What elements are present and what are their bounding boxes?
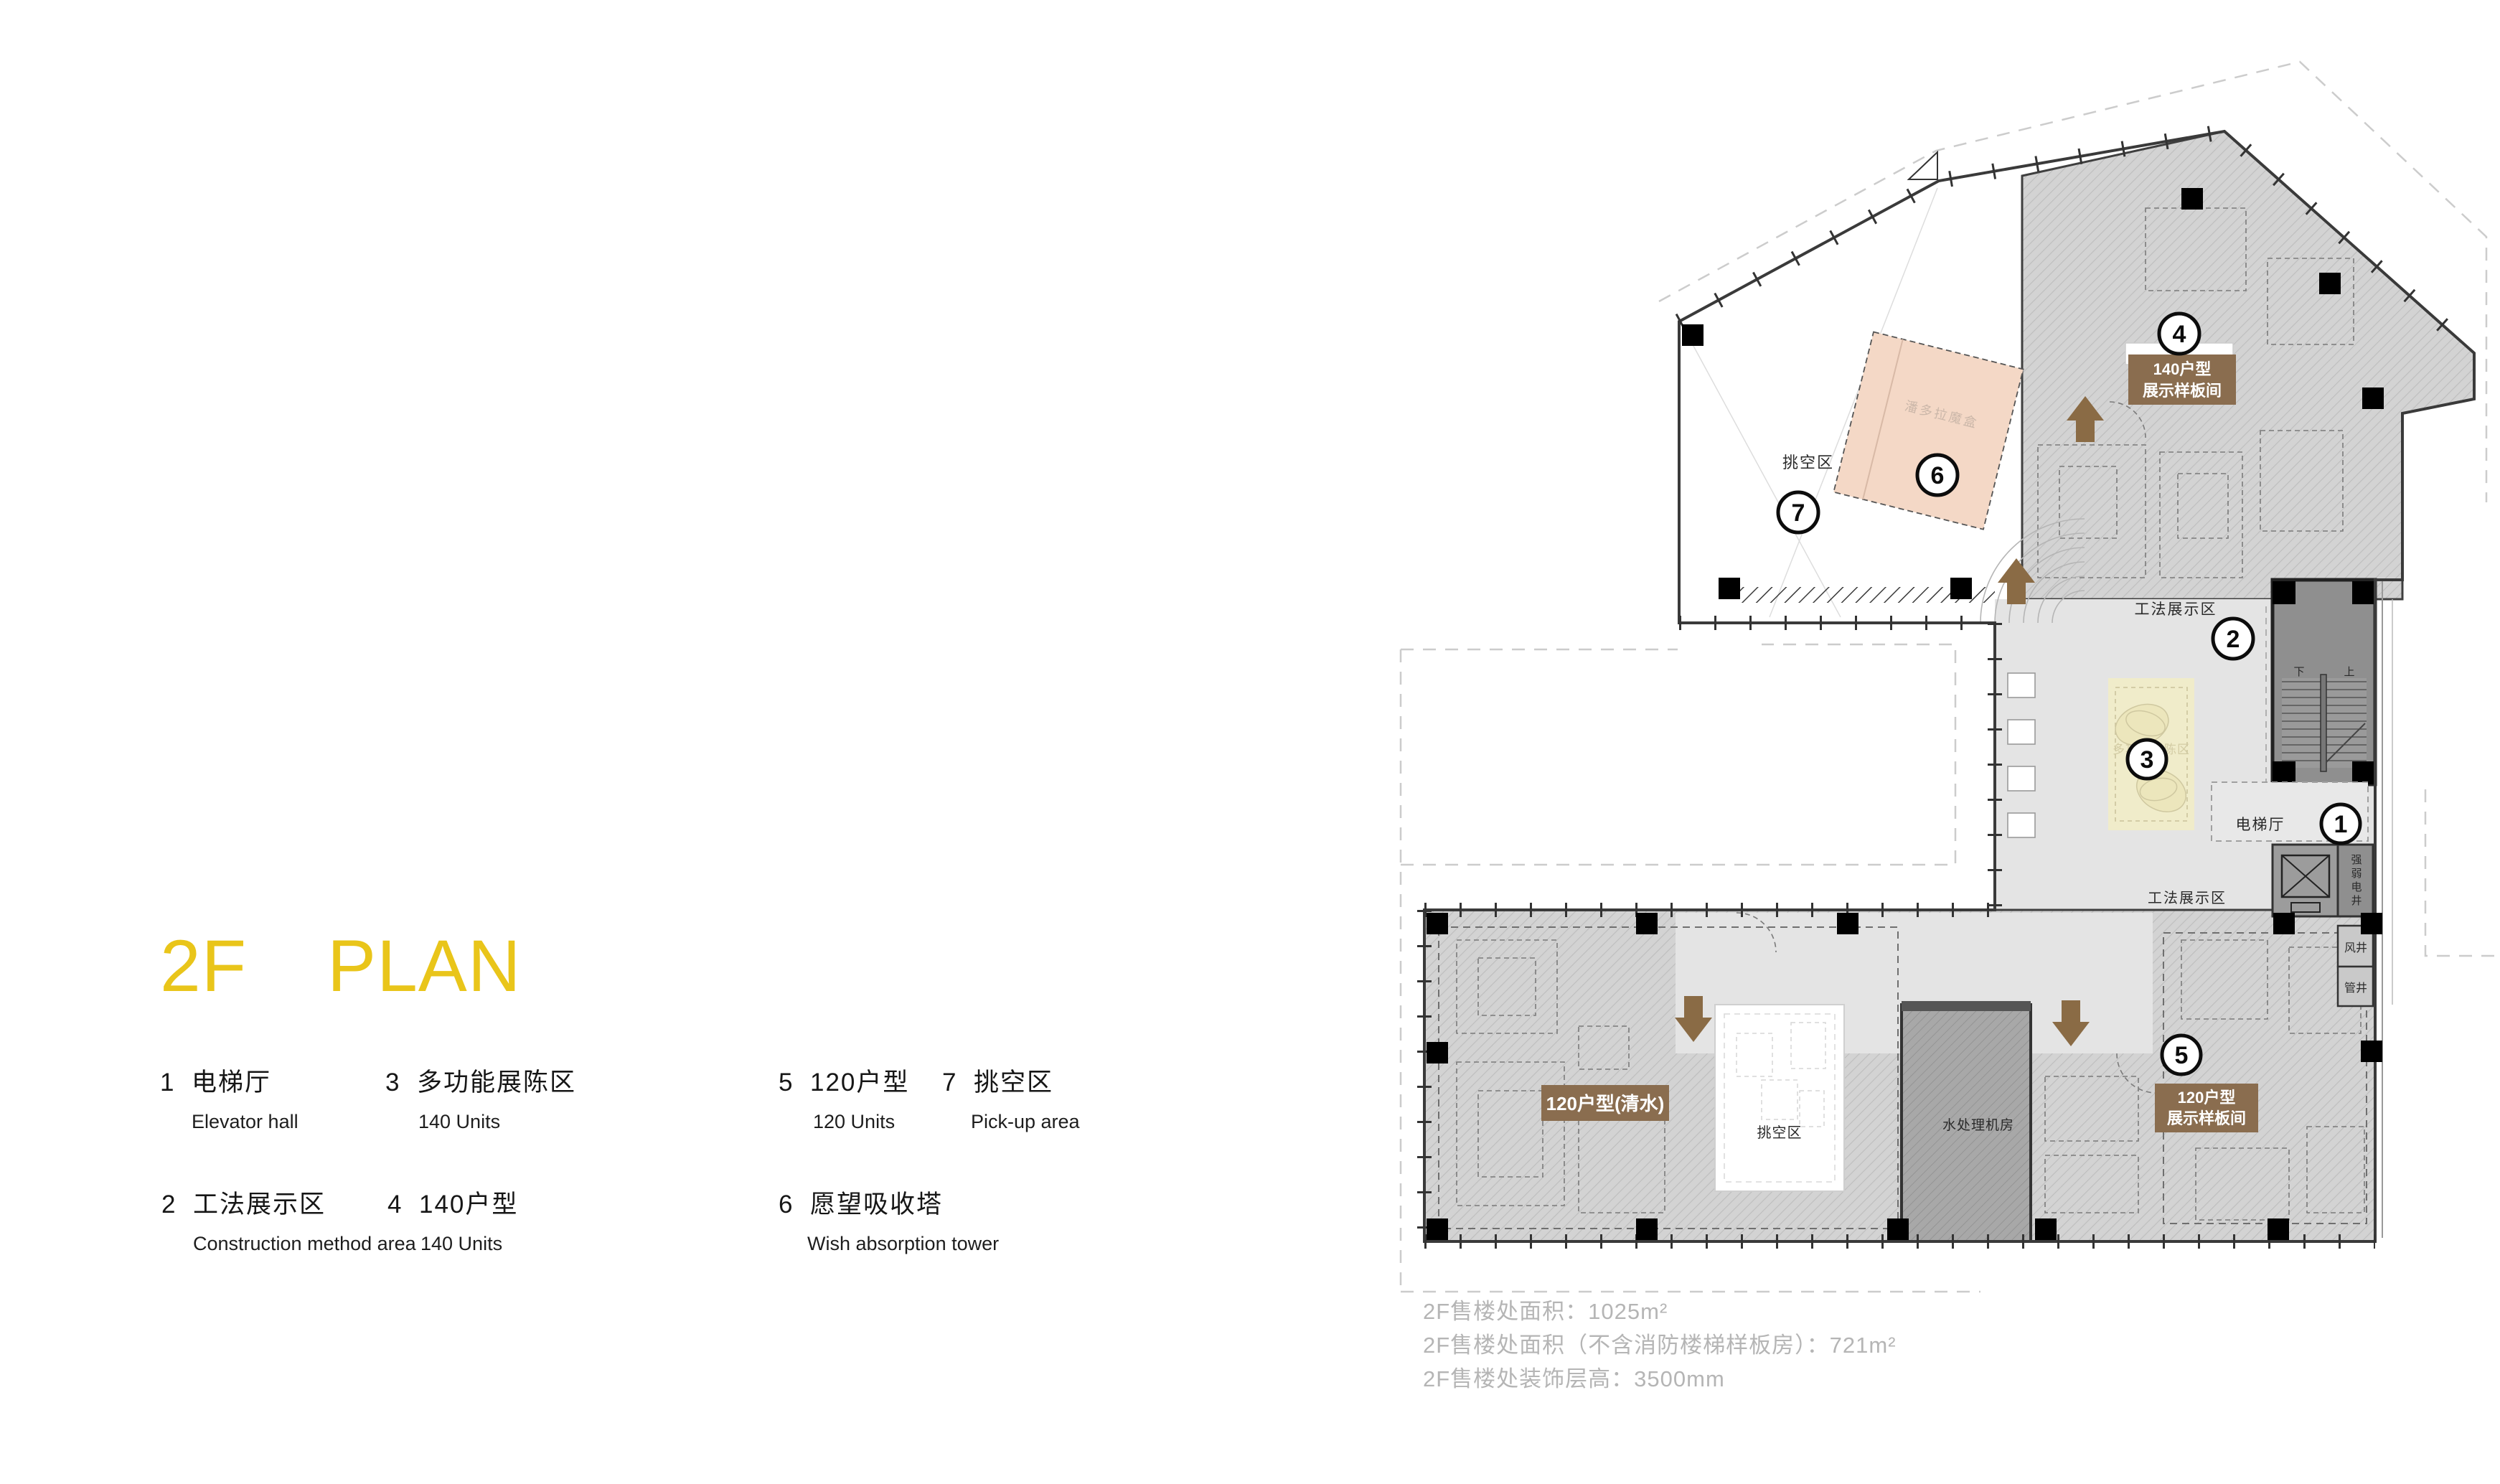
legend-en: 140 Units <box>420 1233 518 1255</box>
tag-120s-line1: 120户型 <box>2178 1089 2236 1107</box>
legend-item-5: 5120户型 120 Units <box>779 1062 909 1133</box>
hall-tongue-right <box>2031 913 2153 1053</box>
legend-num: 1 <box>160 1069 182 1097</box>
legend-num: 6 <box>779 1191 800 1219</box>
legend-item-3: 3多功能展陈区 140 Units <box>385 1062 576 1133</box>
label-method-top: 工法展示区 <box>2135 601 2217 618</box>
marker-4: 4 <box>2159 314 2199 354</box>
legend-num: 7 <box>942 1069 964 1097</box>
label-stair-down: 下 <box>2293 666 2304 678</box>
stat-line-2: 2F售楼处面积（不含消防楼梯样板房）：721m² <box>1423 1328 1897 1362</box>
elevator-block <box>2273 845 2338 916</box>
label-void-bottom: 挑空区 <box>1757 1124 1803 1141</box>
label-stair-up: 上 <box>2344 666 2354 678</box>
tag-140-line2: 展示样板间 <box>2143 382 2222 400</box>
marker-7: 7 <box>1778 492 1818 532</box>
marker-3: 3 <box>2128 740 2166 779</box>
hall-corridor-center <box>1902 913 2031 1005</box>
legend-zh: 愿望吸收塔 <box>810 1184 943 1221</box>
void-bottom-region <box>1715 1005 1844 1191</box>
legend-num: 5 <box>779 1069 800 1097</box>
label-air-shaft: 风井 <box>2344 941 2367 954</box>
tag-120raw-text: 120户型(清水) <box>1546 1093 1665 1114</box>
label-method-bottom: 工法展示区 <box>2148 890 2227 906</box>
legend-zh: 电梯厅 <box>192 1062 271 1099</box>
tag-140-line1: 140户型 <box>2153 360 2212 378</box>
area-stats: 2F售楼处面积：1025m² 2F售楼处面积（不含消防楼梯样板房）：721m² … <box>1423 1295 1897 1396</box>
marker-6-num: 6 <box>1931 462 1945 489</box>
legend-en: Elevator hall <box>192 1111 299 1133</box>
title-word: PLAN <box>327 924 521 1008</box>
legend-item-1: 1电梯厅 Elevator hall <box>160 1062 299 1133</box>
legend-en: Pick-up area <box>971 1111 1080 1133</box>
title-floor: 2F <box>160 924 247 1008</box>
marker-2: 2 <box>2213 619 2253 659</box>
floor-plan-drawing: 潘多拉魔盒 <box>1378 43 2500 1306</box>
page-title: 2F PLAN <box>160 924 522 1008</box>
marker-1: 1 <box>2321 804 2360 843</box>
legend-zh: 多功能展陈区 <box>417 1062 576 1099</box>
legend-en: 140 Units <box>418 1111 576 1133</box>
legend-en: 120 Units <box>813 1111 909 1133</box>
tag-120-sample: 120户型 展示样板间 <box>2155 1084 2258 1132</box>
legend-zh: 140户型 <box>419 1184 518 1221</box>
legend-en: Wish absorption tower <box>807 1233 999 1255</box>
marker-6: 6 <box>1917 455 1958 495</box>
marker-3-num: 3 <box>2140 746 2154 774</box>
stair-block <box>2273 580 2375 784</box>
marker-2-num: 2 <box>2227 626 2240 653</box>
label-pipe-shaft: 管井 <box>2344 982 2367 995</box>
legend-item-7: 7挑空区 Pick-up area <box>942 1062 1080 1133</box>
label-elevator-hall: 电梯厅 <box>2236 817 2285 833</box>
marker-5-num: 5 <box>2175 1042 2189 1069</box>
tag-120-raw: 120户型(清水) <box>1541 1085 1669 1121</box>
unit140-region <box>2022 131 2474 599</box>
marker-1-num: 1 <box>2334 811 2348 838</box>
marker-4-num: 4 <box>2173 321 2186 348</box>
label-water-room: 水处理机房 <box>1942 1117 2014 1133</box>
legend-num: 2 <box>161 1191 183 1219</box>
legend-num: 3 <box>385 1069 407 1097</box>
legend-en: Construction method area <box>193 1233 416 1255</box>
legend-item-4: 4140户型 140 Units <box>387 1184 518 1255</box>
legend-item-6: 6愿望吸收塔 Wish absorption tower <box>779 1184 999 1255</box>
tag-120s-line2: 展示样板间 <box>2167 1109 2246 1127</box>
legend-zh: 120户型 <box>810 1062 909 1099</box>
legend-zh: 挑空区 <box>974 1062 1053 1099</box>
marker-5: 5 <box>2162 1035 2201 1074</box>
legend-item-2: 2工法展示区 Construction method area <box>161 1184 416 1255</box>
stat-line-3: 2F售楼处装饰层高：3500mm <box>1423 1362 1897 1396</box>
floorplan-slide: { "title": { "floor": "2F", "word": "PLA… <box>0 0 2500 1484</box>
label-void-top: 挑空区 <box>1782 454 1834 471</box>
ramp-mark <box>1909 152 1937 179</box>
legend-zh: 工法展示区 <box>193 1184 326 1221</box>
legend-num: 4 <box>387 1191 409 1219</box>
label-power-shaft: 强弱电井 <box>2350 854 2362 908</box>
marker-7-num: 7 <box>1792 499 1805 527</box>
